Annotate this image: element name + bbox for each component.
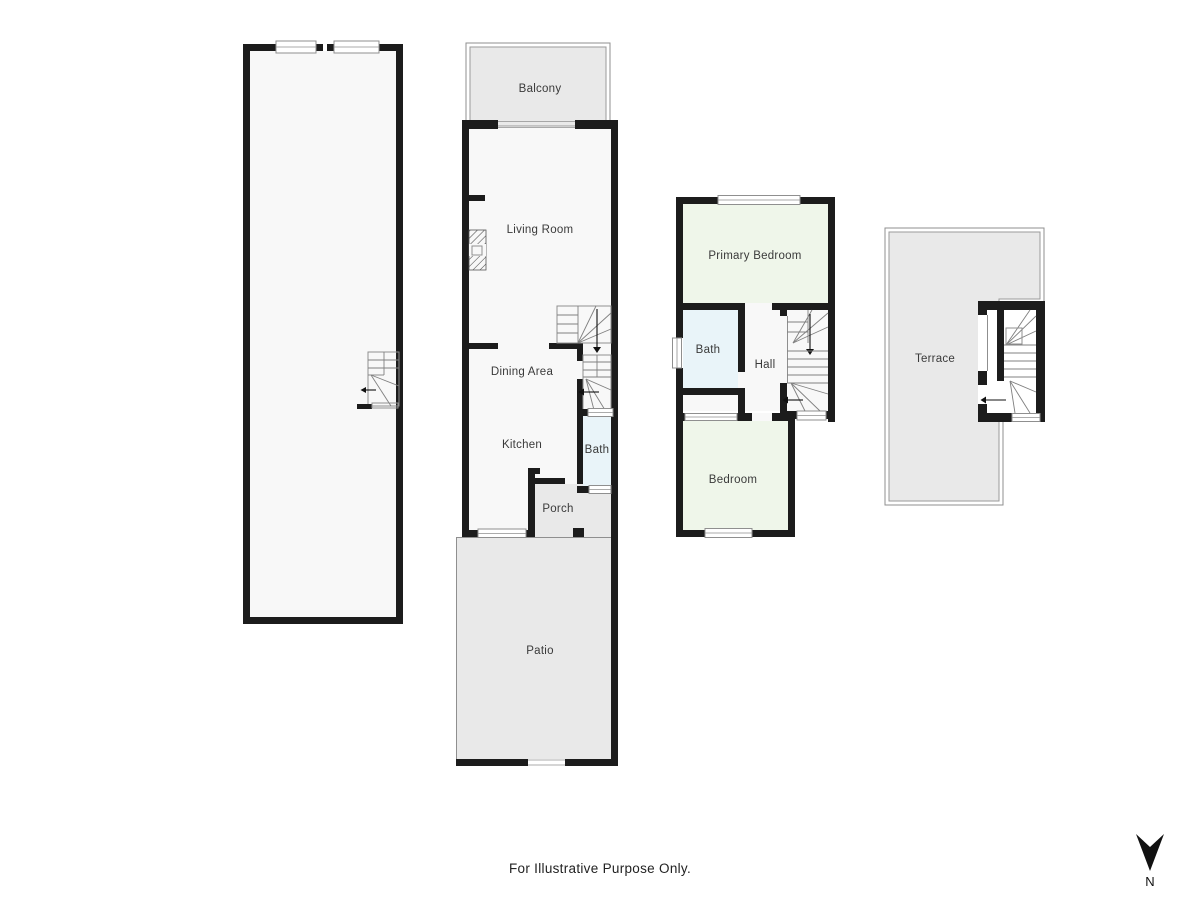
bedroom-label: Bedroom [709,474,757,486]
patio-label: Patio [526,645,553,657]
left-unit-floor [250,51,396,617]
kitchen-label: Kitchen [502,439,542,451]
closet-sliding-door [685,414,737,421]
main-floor-unit: Balcony Living Room Dini [456,43,618,766]
terrace-unit: Terrace [885,228,1045,505]
porch-label: Porch [542,503,573,515]
north-arrow-icon [1136,834,1164,871]
north-compass: N [1136,834,1164,889]
stair-upper-window [797,411,826,420]
terrace-label: Terrace [915,353,955,365]
left-unit-window-2 [334,41,379,53]
kitchen-window [478,529,526,538]
floorplan-svg: Balcony Living Room Dini [0,0,1200,900]
bedroom-window [705,529,752,538]
fireplace [469,230,486,270]
disclaimer-text: For Illustrative Purpose Only. [509,861,691,876]
bath-upper-label: Bath [696,344,721,356]
living-room-label: Living Room [507,224,574,236]
porch-post [573,528,584,538]
bath-upper-window [673,338,682,368]
living-room-wall-stub [462,195,485,201]
terrace-stair-enclosure [978,301,1045,422]
primary-bedroom-label: Primary Bedroom [708,250,801,262]
balcony: Balcony [466,43,610,126]
bath-main-window-top [588,409,613,417]
upper-floor-unit: Primary Bedroom Bath Hall Bedroom [673,196,836,538]
dining-area-label: Dining Area [491,366,554,378]
bath-main-label: Bath [585,444,610,456]
left-unit-window-1 [276,41,316,53]
primary-bedroom-window [718,196,800,205]
hall-label: Hall [755,359,776,371]
terrace-stair-window [1012,414,1040,422]
north-label: N [1145,874,1154,889]
bath-main-window-bottom [589,486,611,494]
floorplan-canvas: Balcony Living Room Dini [0,0,1200,900]
patio-gate [528,759,565,766]
balcony-label: Balcony [519,83,562,95]
left-unit [243,41,403,624]
